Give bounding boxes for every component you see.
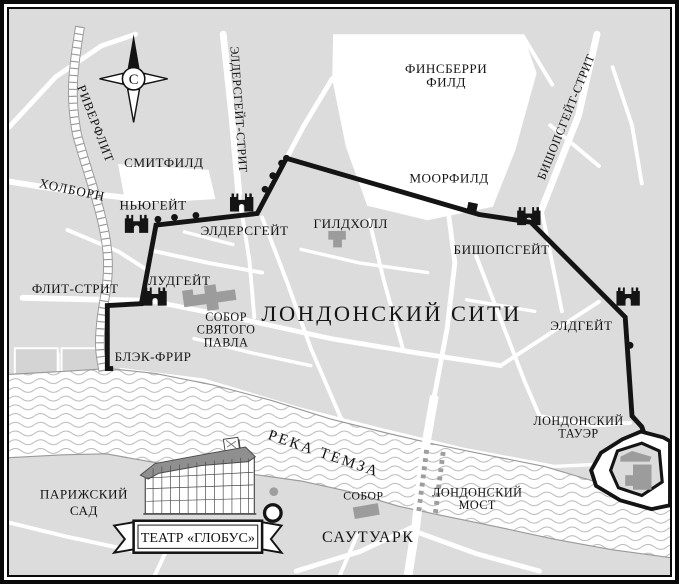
label-finsbury-field-line2: ФИЛД	[426, 75, 466, 90]
label-paris-garden-line1: ПАРИЖСКИЙ	[40, 486, 128, 501]
wall-tower-dot	[262, 186, 269, 193]
label-ludgate: ЛУДГЕЙТ	[148, 273, 210, 288]
wall-tower-dot	[171, 214, 178, 221]
map-dot-marker	[269, 487, 278, 496]
globe-site-circle	[265, 505, 282, 521]
globe-banner-label: ТЕАТР «ГЛОБУС»	[141, 530, 255, 546]
map-frame-inner: ТЕАТР «ГЛОБУС» С РИВЕРФЛИТ ХОЛБОРН СМИТФ…	[7, 7, 672, 577]
label-fleet-street: ФЛИТ-СТРИТ	[32, 281, 119, 296]
label-moorfield: МООРФИЛД	[409, 171, 488, 186]
label-newgate: НЬЮГЕЙТ	[120, 198, 187, 213]
label-southwark: САУТУАРК	[322, 529, 414, 546]
tower-keep	[633, 465, 651, 490]
label-southwark-cathedral: СОБОР	[343, 489, 383, 502]
street-fleet	[23, 298, 144, 301]
compass-north-letter: С	[129, 72, 139, 88]
wall-tower-dot	[193, 212, 200, 219]
label-aldgate: ЭЛДГЕЙТ	[550, 318, 612, 333]
label-london-bridge-line2: МОСТ	[459, 498, 496, 512]
label-paris-garden-line2: САД	[70, 503, 98, 518]
london-city-map: ТЕАТР «ГЛОБУС» С РИВЕРФЛИТ ХОЛБОРН СМИТФ…	[9, 9, 670, 575]
globe-theatre-banner: ТЕАТР «ГЛОБУС»	[114, 521, 281, 553]
label-guildhall: ГИЛДХОЛЛ	[314, 216, 388, 231]
label-blackfriar: БЛЭК-ФРИР	[115, 349, 192, 364]
map-frame-outer: ТЕАТР «ГЛОБУС» С РИВЕРФЛИТ ХОЛБОРН СМИТФ…	[0, 0, 679, 584]
wall-tower-dot	[269, 172, 276, 179]
label-city-title: ЛОНДОНСКИЙ СИТИ	[261, 301, 521, 326]
wall-tower-dot	[278, 160, 285, 167]
label-aldersgate: ЭЛДЕРСГЕЙТ	[201, 223, 289, 238]
label-bishopsgate: БИШОПСГЕЙТ	[454, 242, 550, 257]
wall-tower-dot	[627, 342, 634, 349]
label-tower-line2: ТАУЭР	[558, 426, 598, 440]
label-st-pauls-line3: ПАВЛА	[204, 335, 249, 349]
wall-tower-dot	[283, 155, 290, 162]
wall-tower-dot	[155, 216, 162, 223]
street	[554, 465, 593, 467]
label-smithfield: СМИТФИЛД	[124, 155, 203, 170]
tower-building	[625, 475, 635, 486]
